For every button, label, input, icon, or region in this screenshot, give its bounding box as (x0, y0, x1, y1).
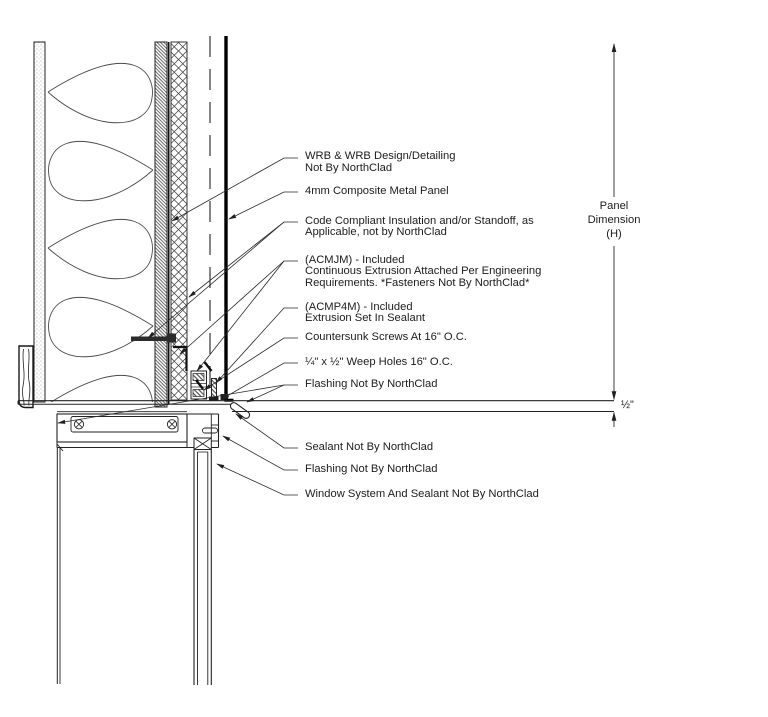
gap-dimension-label: ½" (621, 399, 634, 411)
leader-acmp4m (216, 308, 298, 383)
wall-fastener (131, 337, 173, 342)
flashing (18, 401, 614, 412)
fastener-head (167, 334, 176, 343)
callout-window-system: Window System And Sealant Not By NorthCl… (305, 489, 539, 501)
gypsum-board (34, 42, 45, 402)
dimension-line: Dimension (588, 213, 641, 227)
leader-flashing-lower (223, 436, 298, 470)
callout-flashing-upper: Flashing Not By NorthClad (305, 379, 437, 391)
leader-flashing-upper (247, 385, 298, 402)
callout-acmjm: (ACMJM) - Included Continuous Extrusion … (305, 255, 541, 291)
window-frame (194, 438, 211, 685)
callout-weep-holes: ¼" x ½" Weep Holes 16" O.C. (305, 357, 453, 369)
leader-insulation (189, 222, 298, 297)
panel-dimension-label: Panel Dimension (H) (588, 199, 641, 241)
callout-line: Flashing Not By NorthClad (305, 379, 437, 391)
callout-line: Sealant Not By NorthClad (305, 442, 433, 454)
callout-line: Flashing Not By NorthClad (305, 464, 437, 476)
leader-composite-panel (229, 192, 298, 219)
detail-drawing-page: WRB & WRB Design/Detailing Not By NorthC… (0, 0, 768, 717)
callout-line: Extrusion Set In Sealant (305, 313, 425, 325)
callout-sealant: Sealant Not By NorthClad (305, 442, 433, 454)
callout-line: Requirements. *Fasteners Not By NorthCla… (305, 278, 541, 290)
callout-insulation: Code Compliant Insulation and/or Standof… (305, 216, 534, 240)
extrusion-hardware (131, 334, 251, 420)
dimension-line: (H) (588, 227, 641, 241)
callout-line: 4mm Composite Metal Panel (305, 186, 449, 198)
wall-below (57, 448, 60, 685)
callout-line: ¼" x ½" Weep Holes 16" O.C. (305, 357, 453, 369)
callout-flashing-lower: Flashing Not By NorthClad (305, 464, 437, 476)
receptor-weep-slot (203, 428, 218, 433)
callout-line: Window System And Sealant Not By NorthCl… (305, 489, 539, 501)
wood-blocking (19, 346, 33, 408)
dimension-line: Panel (588, 199, 641, 213)
leader-wrb (172, 158, 298, 221)
callout-line: Not By NorthClad (305, 163, 455, 175)
batt-insulation (48, 63, 153, 434)
callout-wrb: WRB & WRB Design/Detailing Not By NorthC… (305, 151, 455, 175)
callout-countersunk-screws: Countersunk Screws At 16" O.C. (305, 332, 467, 344)
sheathing (155, 42, 167, 407)
leader-sealant (236, 414, 298, 448)
leader-window-system (217, 464, 298, 495)
callout-composite-panel: 4mm Composite Metal Panel (305, 186, 449, 198)
receptor-slot (71, 417, 178, 433)
acmjm-extrusion (191, 371, 207, 399)
callout-acmp4m: (ACMP4M) - Included Extrusion Set In Sea… (305, 302, 425, 326)
callout-line: Applicable, not by NorthClad (305, 227, 534, 239)
callout-line: Countersunk Screws At 16" O.C. (305, 332, 467, 344)
